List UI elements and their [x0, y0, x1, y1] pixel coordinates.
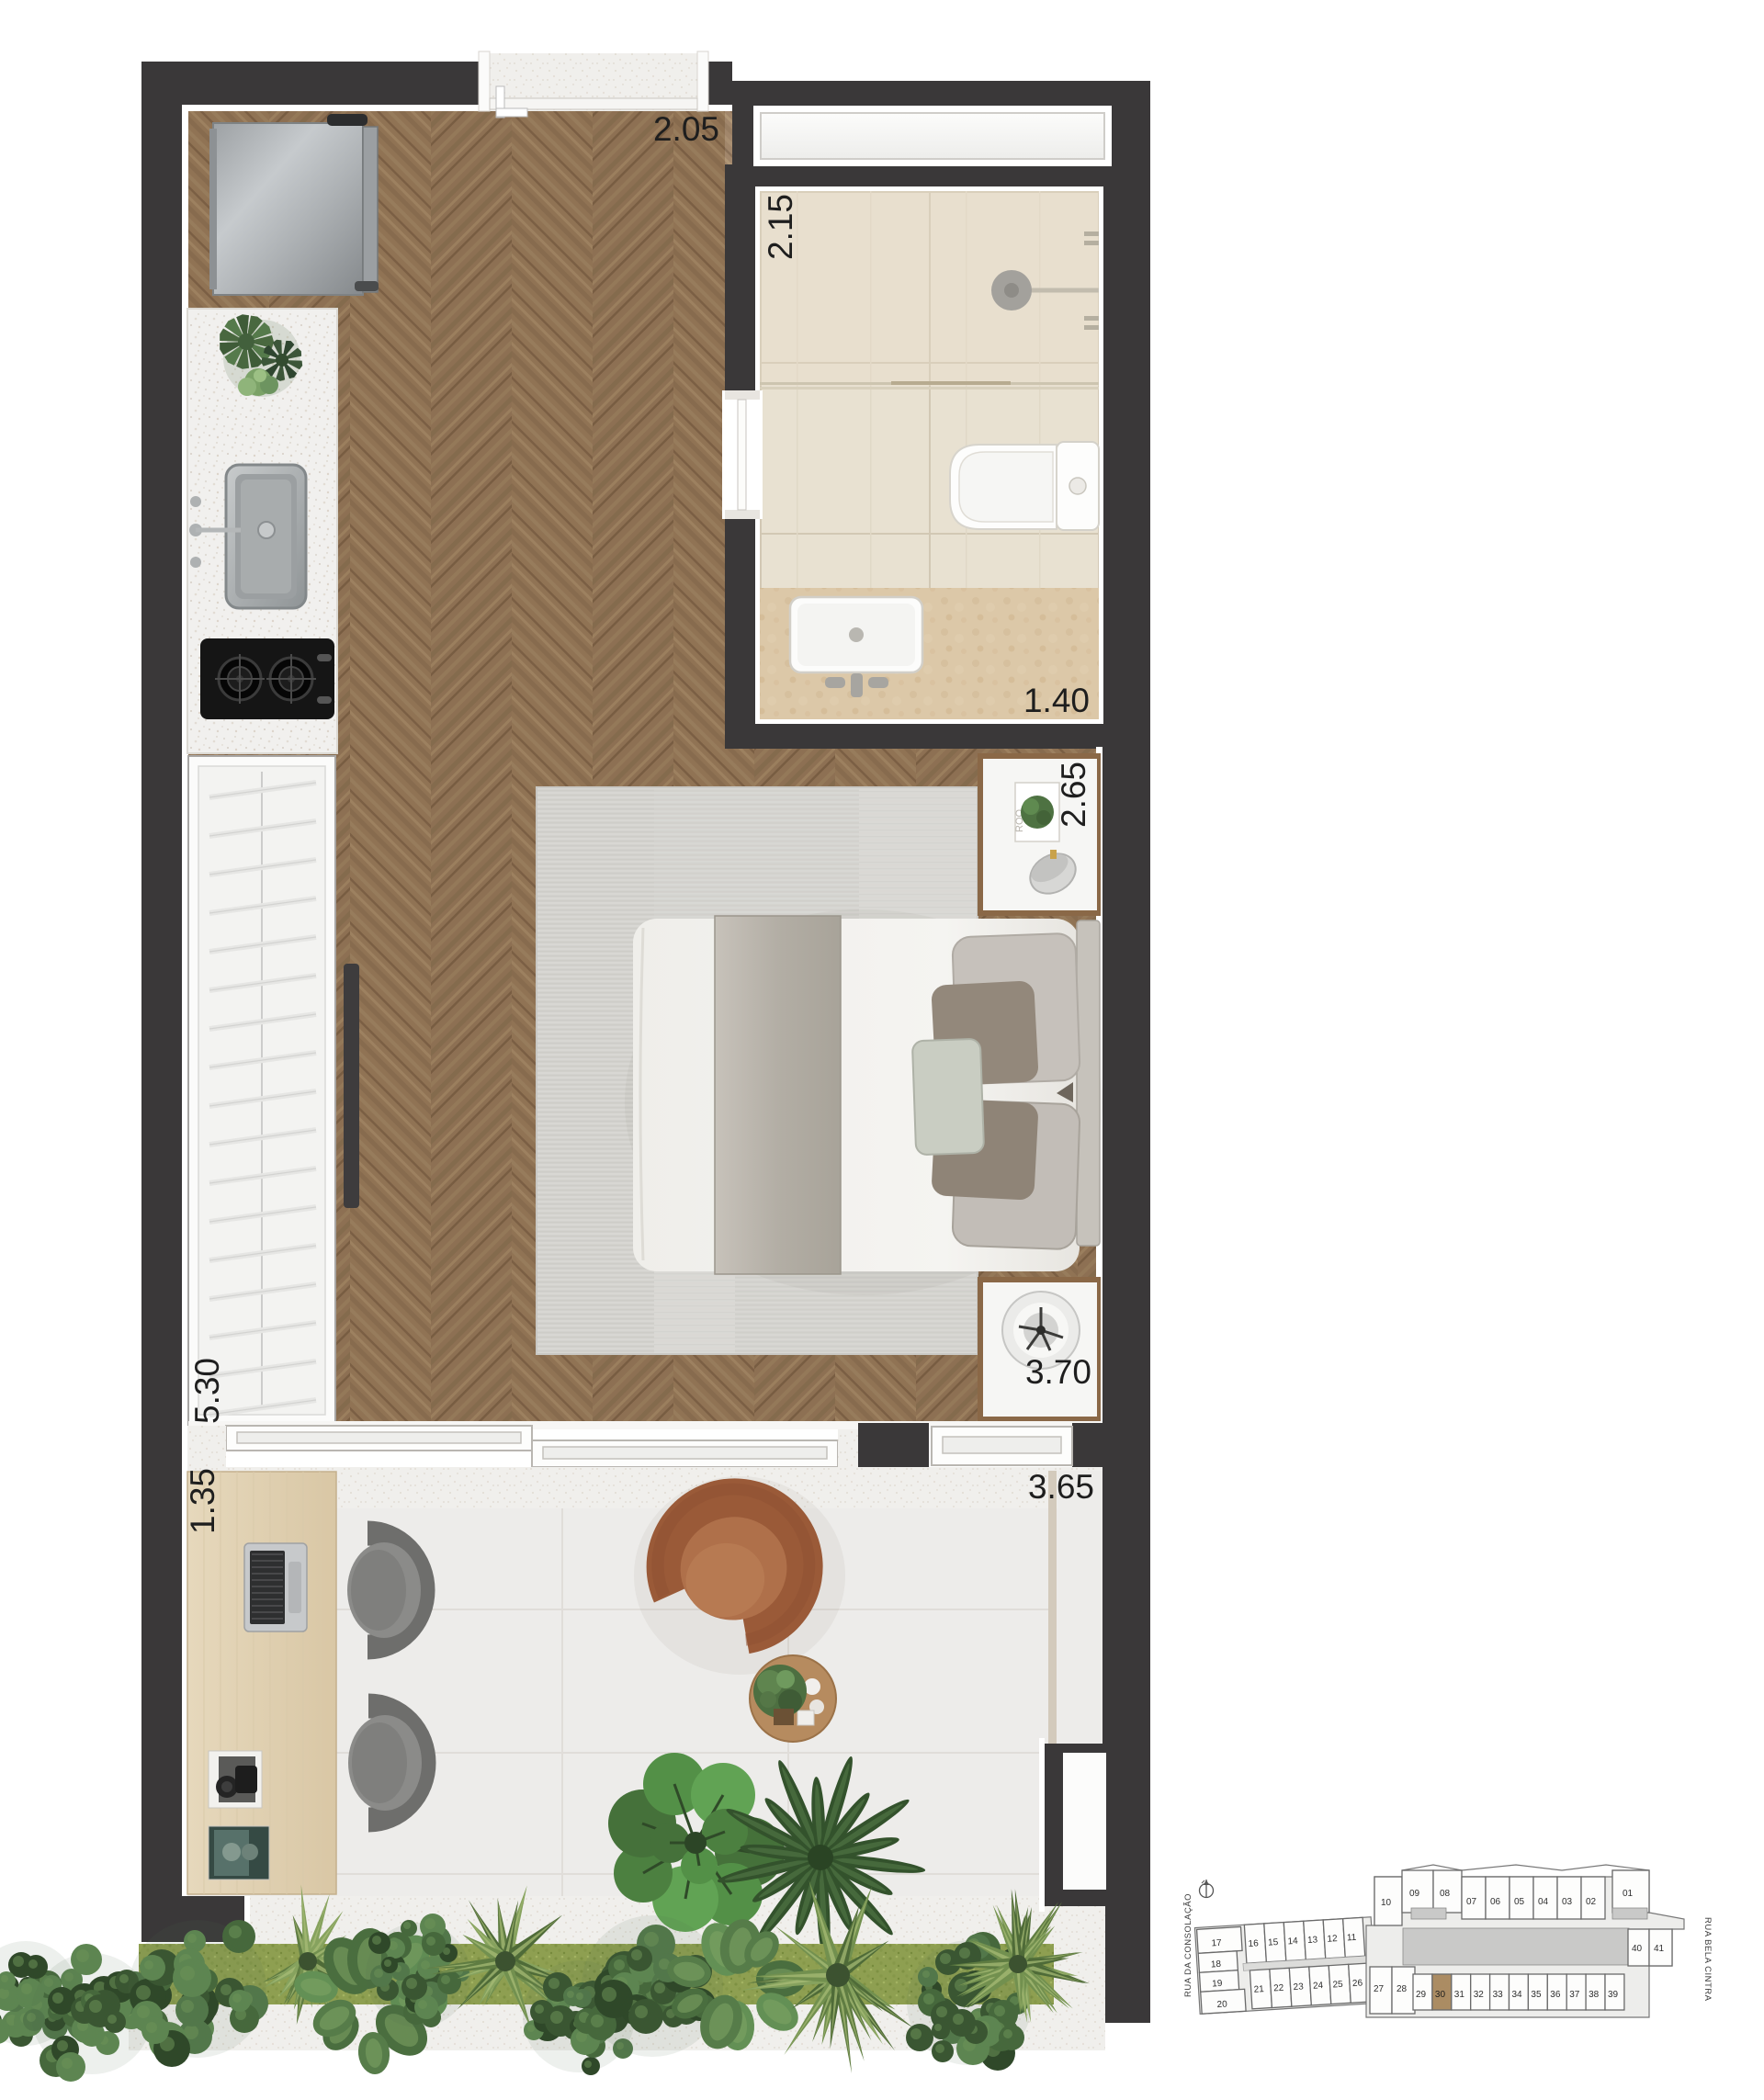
svg-text:08: 08: [1440, 1889, 1451, 1899]
svg-text:28: 28: [1396, 1984, 1408, 1994]
svg-text:3.70: 3.70: [1025, 1353, 1091, 1391]
svg-text:01: 01: [1623, 1889, 1634, 1899]
svg-text:29: 29: [1416, 1990, 1427, 2000]
svg-text:12: 12: [1327, 1934, 1338, 1945]
svg-text:38: 38: [1589, 1990, 1600, 2000]
svg-text:32: 32: [1474, 1990, 1485, 2000]
svg-text:RUA DA CONSOLAÇÃO: RUA DA CONSOLAÇÃO: [1183, 1893, 1193, 1997]
svg-text:22: 22: [1273, 1983, 1284, 1994]
svg-text:1.40: 1.40: [1023, 682, 1090, 719]
svg-text:36: 36: [1550, 1990, 1561, 2000]
svg-text:03: 03: [1562, 1897, 1573, 1907]
svg-text:3.65: 3.65: [1028, 1468, 1094, 1506]
svg-text:07: 07: [1466, 1897, 1477, 1907]
svg-text:16: 16: [1248, 1938, 1259, 1949]
svg-text:17: 17: [1211, 1938, 1222, 1949]
svg-text:37: 37: [1569, 1990, 1580, 2000]
svg-text:21: 21: [1253, 1984, 1264, 1995]
svg-text:19: 19: [1212, 1979, 1223, 1990]
svg-text:34: 34: [1512, 1990, 1523, 2000]
svg-text:24: 24: [1313, 1981, 1324, 1992]
svg-text:41: 41: [1654, 1944, 1665, 1954]
svg-text:1.35: 1.35: [184, 1468, 221, 1534]
svg-text:25: 25: [1332, 1980, 1343, 1991]
svg-text:26: 26: [1352, 1978, 1363, 1989]
svg-text:13: 13: [1307, 1935, 1318, 1946]
svg-text:5.30: 5.30: [188, 1358, 226, 1424]
svg-text:30: 30: [1435, 1990, 1446, 2000]
svg-text:05: 05: [1514, 1897, 1525, 1907]
svg-text:04: 04: [1538, 1897, 1549, 1907]
svg-text:35: 35: [1531, 1990, 1542, 2000]
svg-text:11: 11: [1347, 1933, 1357, 1944]
svg-text:09: 09: [1409, 1889, 1420, 1899]
svg-text:06: 06: [1490, 1897, 1501, 1907]
svg-text:2.05: 2.05: [653, 110, 719, 148]
svg-text:02: 02: [1586, 1897, 1597, 1907]
svg-text:15: 15: [1268, 1937, 1279, 1948]
svg-text:2.15: 2.15: [762, 194, 799, 260]
svg-text:14: 14: [1287, 1936, 1298, 1948]
svg-text:33: 33: [1493, 1990, 1504, 2000]
svg-text:20: 20: [1216, 1999, 1227, 2010]
svg-text:18: 18: [1211, 1959, 1222, 1970]
svg-text:RUA BELA CINTRA: RUA BELA CINTRA: [1702, 1917, 1713, 2002]
svg-text:40: 40: [1632, 1944, 1643, 1954]
svg-text:23: 23: [1293, 1981, 1304, 1993]
svg-text:31: 31: [1454, 1990, 1465, 2000]
svg-text:39: 39: [1608, 1990, 1619, 2000]
svg-text:2.65: 2.65: [1055, 762, 1092, 828]
svg-text:10: 10: [1381, 1898, 1392, 1908]
svg-text:27: 27: [1374, 1984, 1385, 1994]
